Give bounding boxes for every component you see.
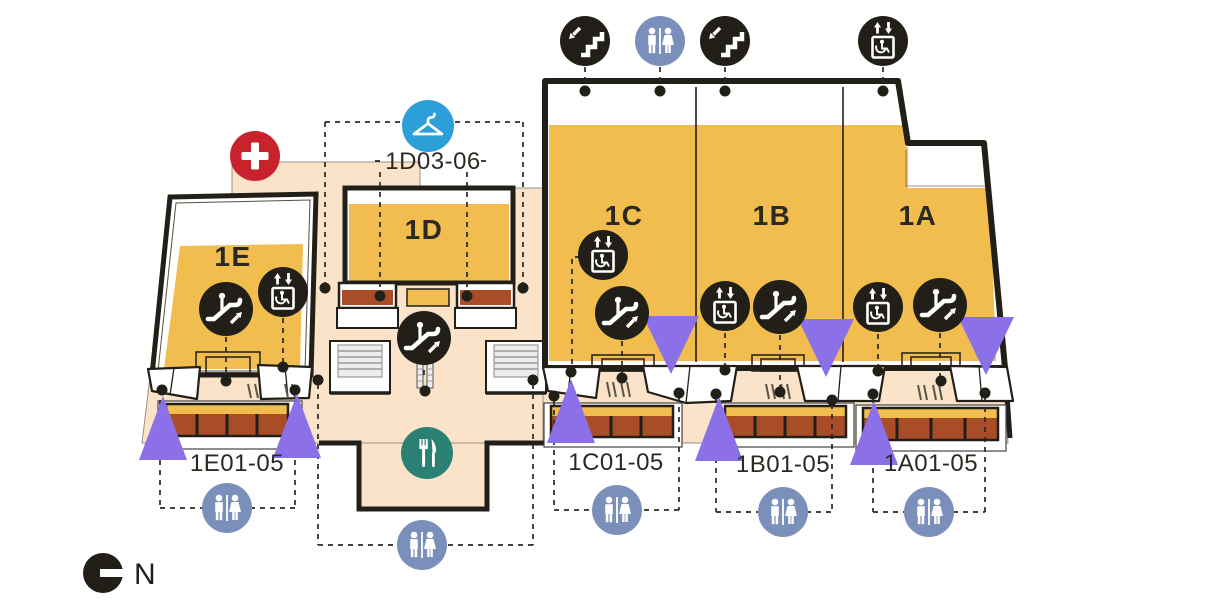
escalator-icon[interactable] xyxy=(397,311,451,365)
floor-plan-page: 1E 1D 1C 1B 1A 1D03-06 1E01-05 1C01-05 1… xyxy=(0,0,1212,611)
zone-1D-shopfront-left xyxy=(342,290,393,305)
connector-dot xyxy=(868,389,879,400)
zone-1D-canopy-right xyxy=(455,308,516,328)
unit-label-1D: 1D03-06 xyxy=(385,148,481,175)
north-compass-notch xyxy=(100,569,127,577)
connector-dot xyxy=(518,283,529,294)
connector-dot xyxy=(936,376,947,387)
connector-dot xyxy=(157,385,168,396)
north-label: N xyxy=(134,558,156,591)
escalator-steps xyxy=(338,345,382,377)
restroom-icon[interactable] xyxy=(758,487,808,537)
connector-dot xyxy=(313,375,324,386)
zone-label-1A[interactable]: 1A xyxy=(899,200,938,231)
connector-dot xyxy=(320,283,331,294)
connector-dot xyxy=(528,375,539,386)
unit-label-1C: 1C01-05 xyxy=(568,449,664,476)
accessible-elevator-icon[interactable] xyxy=(258,267,308,317)
connector-dot xyxy=(878,86,889,97)
escalator-structure-right xyxy=(486,341,546,393)
connector-dot xyxy=(720,86,731,97)
connector-dot xyxy=(278,362,289,373)
restroom-icon[interactable] xyxy=(202,483,252,533)
floor-plan-map: 1E 1D 1C 1B 1A 1D03-06 1E01-05 1C01-05 1… xyxy=(0,0,1212,611)
unit-label-1E: 1E01-05 xyxy=(190,450,284,477)
connector-dot xyxy=(462,291,473,302)
accessible-elevator-icon[interactable] xyxy=(700,281,750,331)
connector-dot xyxy=(873,366,884,377)
connector-dot xyxy=(580,86,591,97)
connector-dot xyxy=(290,385,301,396)
restroom-icon[interactable] xyxy=(904,487,954,537)
connector-dot xyxy=(375,291,386,302)
escalator-icon[interactable] xyxy=(199,282,253,336)
connector-dot xyxy=(980,388,991,399)
cloakroom-icon[interactable] xyxy=(402,100,454,152)
strip-roof xyxy=(725,406,846,416)
unit-label-1A: 1A01-05 xyxy=(884,450,978,477)
first-aid-icon[interactable] xyxy=(230,131,280,181)
accessible-elevator-icon[interactable] xyxy=(858,16,908,66)
restroom-icon[interactable] xyxy=(592,485,642,535)
escalator-icon[interactable] xyxy=(913,278,967,332)
connector-dot xyxy=(720,365,731,376)
zone-label-1C[interactable]: 1C xyxy=(605,200,644,231)
accessible-elevator-icon[interactable] xyxy=(853,282,903,332)
strip-roof xyxy=(166,404,288,414)
connector-dot xyxy=(617,373,628,384)
zone-label-1D[interactable]: 1D xyxy=(405,214,444,245)
restroom-icon[interactable] xyxy=(397,520,447,570)
stairs-icon[interactable] xyxy=(560,16,610,66)
north-compass: N xyxy=(83,553,156,593)
connector-dot xyxy=(655,86,666,97)
restroom-icon[interactable] xyxy=(635,16,685,66)
zone-1D-canopy-left xyxy=(337,308,398,328)
escalator-steps xyxy=(494,345,538,377)
escalator-icon[interactable] xyxy=(595,286,649,340)
food-court-icon[interactable] xyxy=(401,427,453,479)
shopfront-strip-1B xyxy=(718,403,854,447)
connector-dot xyxy=(566,367,577,378)
escalator-structure-left xyxy=(330,341,390,393)
zone-label-1E[interactable]: 1E xyxy=(214,241,251,272)
connector-dot xyxy=(827,395,838,406)
zone-label-1B[interactable]: 1B xyxy=(753,200,792,231)
connector-dot xyxy=(674,388,685,399)
connector-dot xyxy=(775,387,786,398)
zone-1D-entry xyxy=(407,289,449,306)
connector-dot xyxy=(711,389,722,400)
connector-dot xyxy=(549,391,560,402)
strip-roof xyxy=(863,408,998,418)
connector-dot xyxy=(221,376,232,387)
unit-label-1B: 1B01-05 xyxy=(736,451,830,478)
connector-dot xyxy=(420,386,431,397)
stairs-icon[interactable] xyxy=(700,16,750,66)
accessible-elevator-icon[interactable] xyxy=(578,230,628,280)
escalator-icon[interactable] xyxy=(753,280,807,334)
